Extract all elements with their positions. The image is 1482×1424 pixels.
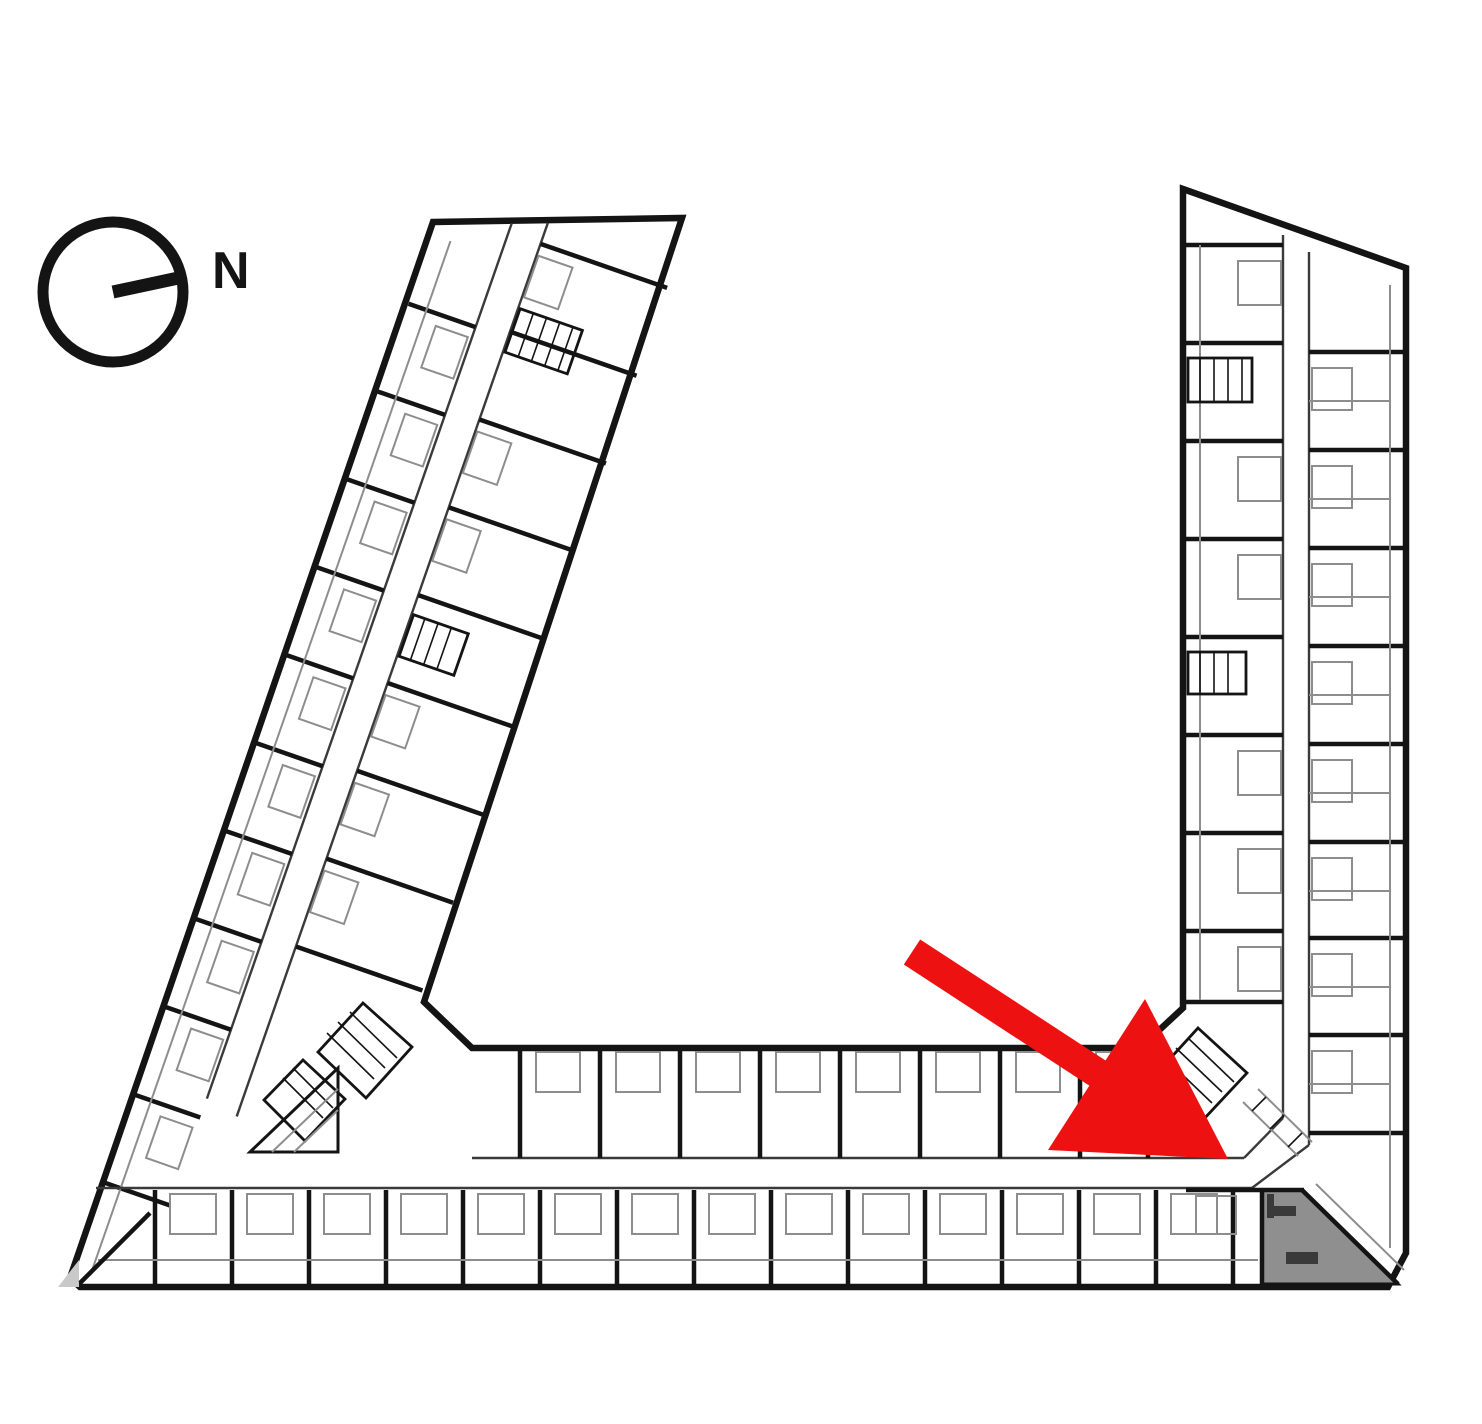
- corner-shade: [58, 1260, 79, 1287]
- floor-plan-svg: N: [0, 0, 1482, 1424]
- north-label: N: [212, 242, 250, 300]
- north-compass: N: [43, 222, 250, 362]
- compass-needle-icon: [113, 277, 183, 292]
- floor-plan-page: N: [0, 0, 1482, 1424]
